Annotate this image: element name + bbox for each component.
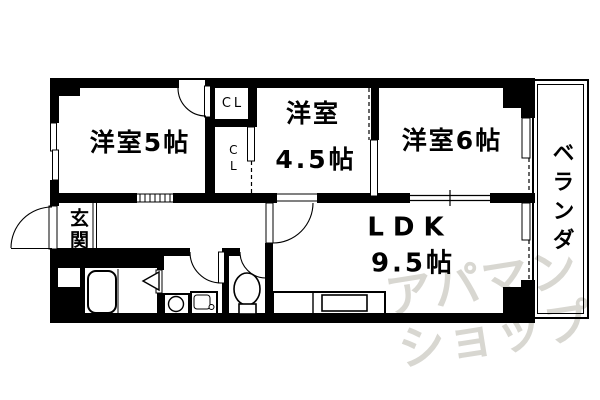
sliding-door <box>371 140 378 196</box>
room-label-genkan: 玄関 <box>67 208 87 252</box>
room-label-western45-line2: 4.5帖 <box>275 147 356 173</box>
door-swing-arc <box>178 88 206 116</box>
fixtures <box>88 269 385 314</box>
room-label-ldk-line1: LDK <box>367 214 452 241</box>
room-label-veranda: ベランダ <box>549 141 572 257</box>
sliding-door <box>248 127 255 161</box>
toilet-icon <box>234 273 260 305</box>
door-swing-arc <box>190 252 221 283</box>
floor-plan: アパマン ショップ <box>0 0 600 400</box>
window <box>522 203 530 240</box>
door-leaf <box>205 86 211 117</box>
vanity-drain-icon <box>209 305 214 310</box>
vanity-basin-icon <box>194 295 210 309</box>
door-leaf <box>219 252 225 283</box>
entrance-niche <box>58 268 80 287</box>
door-swing-arc <box>11 207 52 248</box>
door-swing-arc <box>273 203 313 243</box>
room-label-western6: 洋室6帖 <box>402 128 502 154</box>
sliding-door <box>410 190 490 206</box>
kitchen-sink-icon <box>322 295 367 311</box>
room-label-western45-line1: 洋室 <box>286 101 340 127</box>
window <box>51 123 57 151</box>
washing-machine-drum-icon <box>169 297 184 312</box>
plan-linework <box>0 0 600 400</box>
room-label-western5: 洋室5帖 <box>90 130 190 156</box>
ldk-doorway <box>277 194 317 201</box>
room-label-ldk-line2: 9.5帖 <box>371 250 455 277</box>
window <box>53 150 59 180</box>
folding-door-icon <box>143 272 159 290</box>
genkan-step <box>93 203 97 248</box>
bathtub-icon <box>88 271 116 313</box>
sliding-door-rail <box>137 194 173 202</box>
toilet-base-icon <box>239 304 256 314</box>
door-leaf <box>49 206 57 249</box>
door-leaf <box>266 203 273 243</box>
closet-label-lower: CL <box>227 143 240 175</box>
closet-label-upper: CL <box>222 97 244 111</box>
window <box>522 118 530 158</box>
